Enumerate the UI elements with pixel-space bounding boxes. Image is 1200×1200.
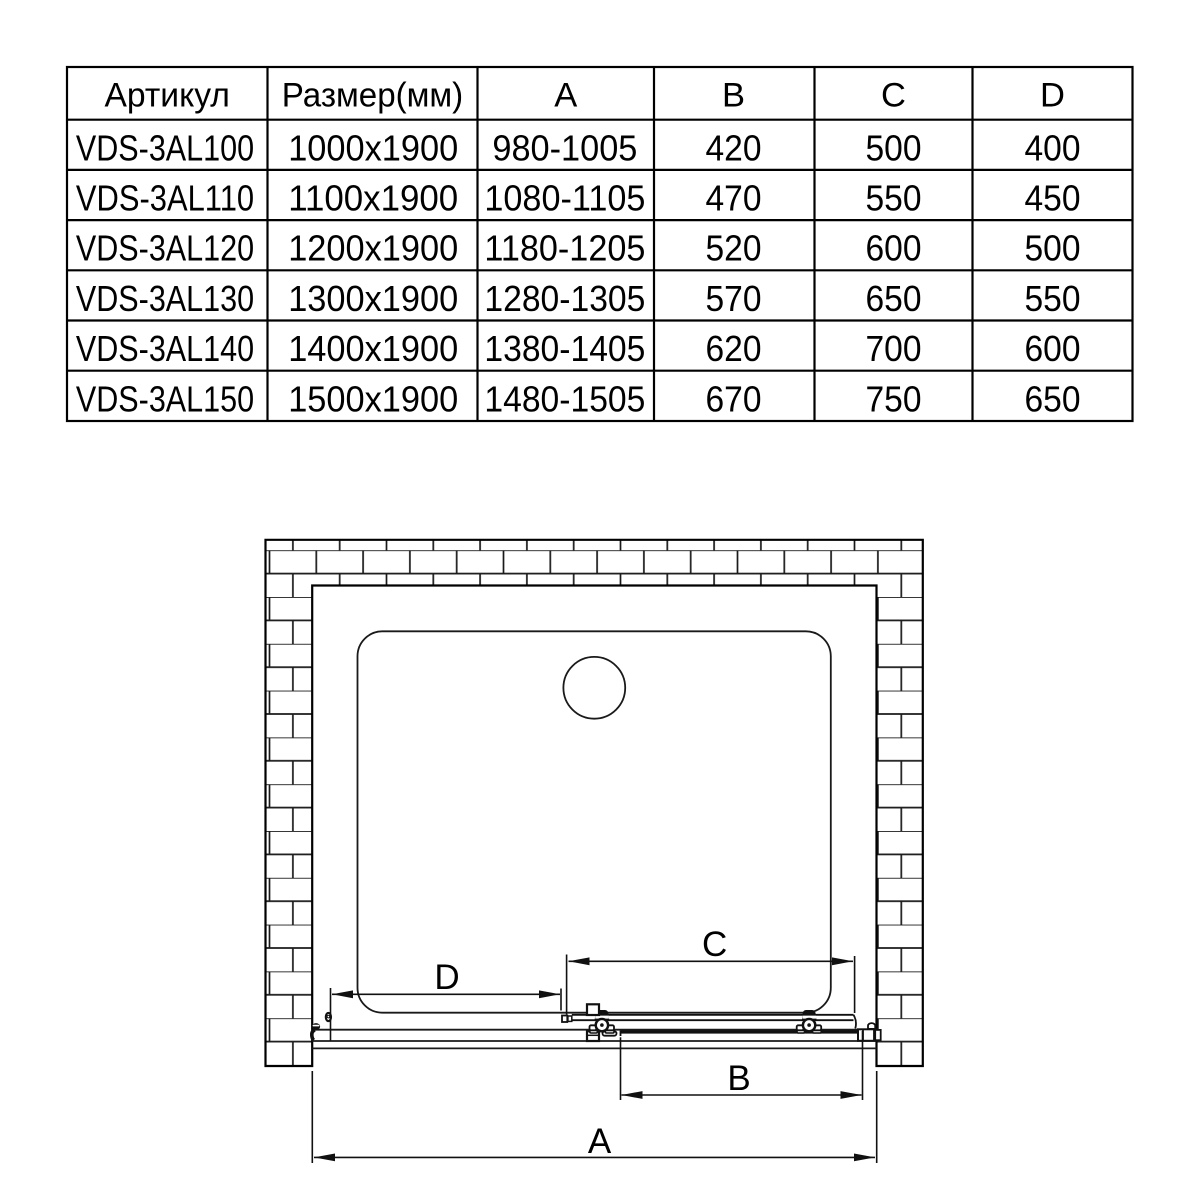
svg-text:Артикул: Артикул [105, 77, 230, 115]
svg-text:450: 450 [1025, 178, 1081, 219]
svg-text:600: 600 [866, 228, 922, 269]
svg-text:650: 650 [1025, 378, 1081, 419]
svg-text:VDS-3AL100: VDS-3AL100 [76, 127, 254, 168]
svg-text:420: 420 [706, 127, 762, 168]
svg-text:1480-1505: 1480-1505 [484, 378, 645, 419]
svg-text:550: 550 [866, 178, 922, 219]
svg-text:A: A [588, 1122, 612, 1161]
svg-text:650: 650 [866, 278, 922, 319]
svg-text:Размер(мм): Размер(мм) [282, 77, 463, 115]
svg-text:600: 600 [1025, 328, 1081, 369]
svg-text:1500х1900: 1500х1900 [288, 378, 458, 419]
svg-text:B: B [727, 1059, 750, 1098]
svg-text:В: В [722, 77, 745, 115]
svg-text:570: 570 [706, 278, 762, 319]
svg-text:520: 520 [706, 228, 762, 269]
svg-text:1380-1405: 1380-1405 [484, 328, 645, 369]
svg-text:700: 700 [866, 328, 922, 369]
svg-text:500: 500 [866, 127, 922, 168]
svg-text:VDS-3AL150: VDS-3AL150 [76, 378, 254, 419]
svg-text:VDS-3AL130: VDS-3AL130 [76, 278, 254, 319]
svg-text:980-1005: 980-1005 [492, 127, 637, 168]
svg-text:470: 470 [706, 178, 762, 219]
svg-text:1300х1900: 1300х1900 [288, 278, 458, 319]
svg-text:550: 550 [1025, 278, 1081, 319]
svg-text:D: D [434, 958, 459, 997]
svg-text:1080-1105: 1080-1105 [484, 178, 645, 219]
svg-text:VDS-3AL110: VDS-3AL110 [76, 178, 254, 219]
svg-text:1000х1900: 1000х1900 [288, 127, 458, 168]
svg-text:1280-1305: 1280-1305 [484, 278, 645, 319]
svg-text:VDS-3AL140: VDS-3AL140 [76, 328, 254, 369]
svg-text:1100х1900: 1100х1900 [288, 178, 458, 219]
svg-text:750: 750 [866, 378, 922, 419]
svg-text:D: D [1040, 77, 1065, 115]
svg-text:C: C [702, 925, 727, 964]
svg-text:400: 400 [1025, 127, 1081, 168]
svg-text:1400х1900: 1400х1900 [288, 328, 458, 369]
svg-text:500: 500 [1025, 228, 1081, 269]
svg-text:С: С [881, 77, 906, 115]
svg-text:VDS-3AL120: VDS-3AL120 [76, 228, 254, 269]
svg-text:670: 670 [706, 378, 762, 419]
svg-text:620: 620 [706, 328, 762, 369]
svg-text:1180-1205: 1180-1205 [484, 228, 645, 269]
svg-text:1200х1900: 1200х1900 [288, 228, 458, 269]
svg-text:А: А [554, 77, 577, 115]
